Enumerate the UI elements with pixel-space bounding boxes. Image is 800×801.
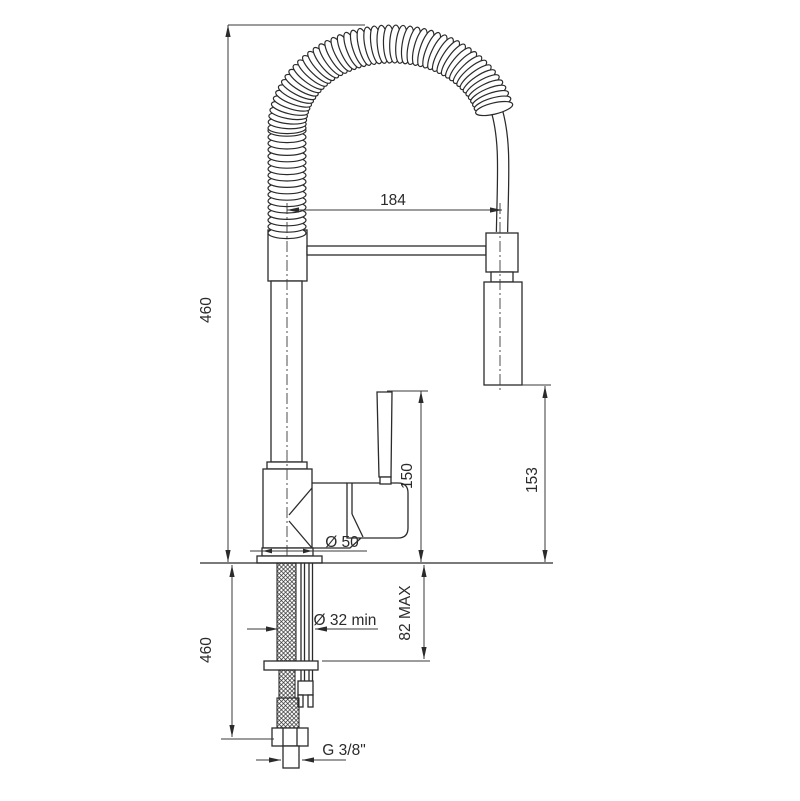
spout-support-arm: [307, 246, 486, 255]
threaded-shank: [277, 563, 296, 661]
braided-hose: [277, 698, 299, 728]
label-spout-reach: 184: [380, 192, 406, 209]
spray-holder-block: [486, 233, 518, 272]
shank-lower: [279, 670, 295, 698]
technical-drawing-canvas: 184 460 150 153 Ø 50 Ø 32 min 82 MAX 460…: [0, 0, 800, 801]
riser-column: [271, 281, 302, 462]
dimension-labels: 184 460 150 153 Ø 50 Ø 32 min 82 MAX 460…: [198, 192, 541, 759]
hex-connector: [272, 728, 308, 746]
mounting-washer: [264, 661, 318, 670]
label-height-top: 460: [198, 297, 215, 323]
mixer-body: [263, 469, 312, 548]
label-base-diameter: Ø 50: [325, 534, 359, 551]
base-flange-plate: [257, 556, 322, 563]
spray-head: [484, 282, 522, 385]
spray-holder-neck: [491, 272, 513, 282]
label-hose-length: 460: [198, 637, 215, 663]
cartridge-housing: [347, 483, 408, 538]
label-thread: G 3/8": [322, 742, 365, 759]
label-handle-height: 150: [399, 463, 416, 489]
faucet-body-group: [257, 216, 522, 768]
label-deck-max: 82 MAX: [397, 585, 414, 641]
lever-handle: [377, 392, 392, 477]
thread-tail-g38: [283, 746, 299, 768]
faucet-technical-drawing: 184 460 150 153 Ø 50 Ø 32 min 82 MAX 460…: [0, 0, 800, 801]
mounting-bracket: [298, 681, 313, 707]
label-hole-min-diameter: Ø 32 min: [314, 612, 377, 629]
label-spray-height: 153: [524, 467, 541, 493]
lever-neck: [380, 477, 391, 484]
